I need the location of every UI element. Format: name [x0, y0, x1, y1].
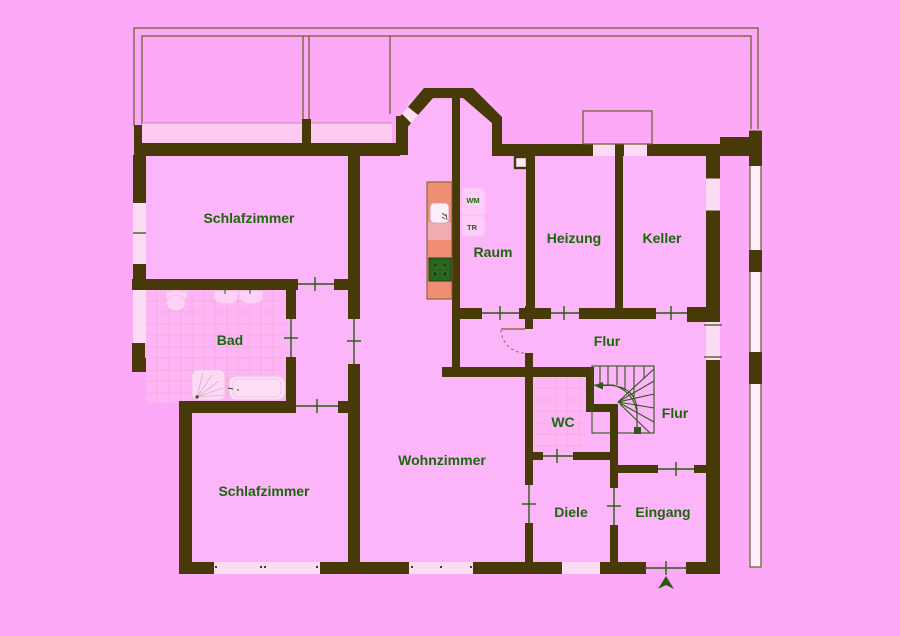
svg-text:Schlafzimmer: Schlafzimmer	[203, 210, 295, 226]
svg-text:Keller: Keller	[643, 230, 682, 246]
svg-text:Flur: Flur	[662, 405, 689, 421]
svg-text:Eingang: Eingang	[635, 504, 690, 520]
svg-text:WC: WC	[551, 414, 574, 430]
svg-text:Raum: Raum	[474, 244, 513, 260]
svg-text:TR: TR	[467, 223, 478, 232]
svg-text:Wohnzimmer: Wohnzimmer	[398, 452, 486, 468]
svg-text:WM: WM	[466, 196, 479, 205]
svg-text:Bad: Bad	[217, 332, 243, 348]
svg-text:Flur: Flur	[594, 333, 621, 349]
svg-text:Diele: Diele	[554, 504, 588, 520]
svg-text:Heizung: Heizung	[547, 230, 601, 246]
svg-text:Schlafzimmer: Schlafzimmer	[218, 483, 310, 499]
